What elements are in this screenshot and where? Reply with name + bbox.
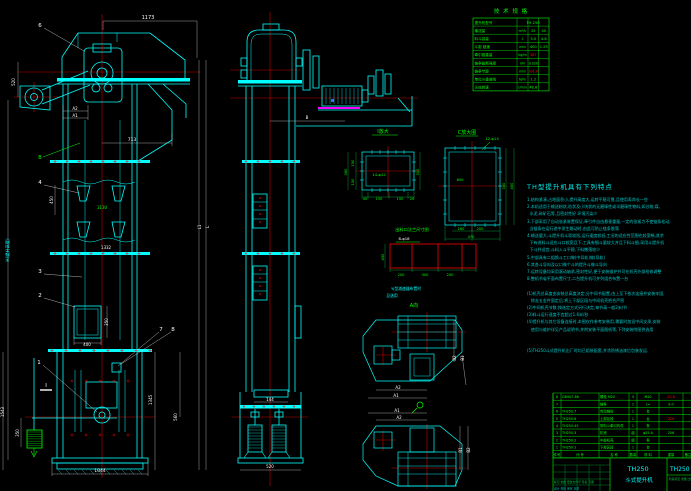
dim-label: 1173 <box>142 15 155 21</box>
dim-label: 200 <box>398 273 406 277</box>
tech-cell-value: 400 <box>530 45 538 49</box>
feature-note-line: 使用与维护详见产品说明书,并附安装平面图纸等,下列安装附图供选用 <box>527 326 691 333</box>
bom-header: 材 料 <box>644 452 652 457</box>
tech-cell-label: 单位斗重曲线 <box>475 77 497 82</box>
bom-material: 条 <box>646 437 650 442</box>
dim-label: A1 <box>394 408 400 413</box>
dim-label: 560 <box>173 413 178 421</box>
dim-label: 360 <box>344 168 348 176</box>
tech-cell-label: 链条破断强度 <box>475 60 497 65</box>
base-hatch <box>138 470 142 474</box>
shaft-dot <box>331 99 334 102</box>
feature-notes: TH型提升机具有下列特点 1.结构紧凑,占地面积小,提升高度大,运转平稳可靠,且… <box>527 181 691 354</box>
feature-note-line: 1.结构紧凑,占地面积小,提升高度大,运转平稳可靠,且使用寿命长一些 <box>527 196 691 203</box>
tech-cell-label: 牵引链重量 <box>475 52 493 57</box>
flange-bolt-mark <box>99 434 102 437</box>
bom-name: 机壳 <box>600 430 607 435</box>
base-hatch <box>74 470 78 474</box>
base-hatch <box>66 470 70 474</box>
bom-code: TH250.7 <box>561 410 576 414</box>
bom-qty: 1 <box>632 446 634 450</box>
feature-note-line: 下斗并适宜,斗料入斗平稳,下料撒落较少 <box>527 246 691 253</box>
dim-label: A1 <box>393 393 399 398</box>
reducer-plan-views <box>363 316 462 486</box>
bom-material: 台 <box>646 445 650 450</box>
dim-label: 1543 <box>0 406 5 417</box>
head-platform-band <box>57 78 190 82</box>
base-hatch <box>82 470 86 474</box>
flange-bolt-mark <box>113 434 116 437</box>
flange-bolt-mark <box>71 434 74 437</box>
flange-bolt-mark <box>127 380 130 383</box>
takeup-lever <box>32 358 117 430</box>
bom-no: 6 <box>556 410 558 414</box>
tech-cell-unit: N/m <box>519 78 526 82</box>
tech-cell-value: 1.2 <box>530 78 536 82</box>
plan2-outline <box>363 426 462 486</box>
feature-note-line: 除去五金件固定后,将上下部区段与中间机壳把合严密 <box>527 297 691 304</box>
tech-cell-unit: r/min <box>518 86 527 90</box>
dim-label: 300 <box>416 168 420 176</box>
base-hatch <box>122 470 126 474</box>
feature-note-line: 4.输送量大,斗提升机斗距较短,运行速度较低,工况的适应性范围也较宽畅,其余 <box>527 232 691 239</box>
feature-note-line: 6.其各斗导向及以口做个斗的提升斗做斗导向 <box>527 261 691 268</box>
bom-name: 螺栓 M20 <box>600 394 615 399</box>
dim-label: 450 <box>510 182 514 190</box>
tech-cell-value: TH 250 <box>525 20 540 25</box>
tech-spec-table: 技 术 规 格 提升机型号TH 250输送量m³/h2540料斗容量L3.04.… <box>473 7 549 91</box>
tech-cell-unit: L <box>522 37 524 41</box>
dim-label: 3 <box>38 269 42 275</box>
plan1-outline <box>363 320 462 381</box>
boot-casing <box>57 352 142 458</box>
bom-name: 上部区段 <box>600 416 614 421</box>
feature-note-line: 3.下部采用了自动张紧装置保证,牵引件自由悬垂重量,一定的张紧力不使链条松动, <box>527 218 691 225</box>
dim-label: 12-φ14 <box>485 136 499 141</box>
dim-label: 150 <box>351 159 355 167</box>
bom-material: M20 <box>644 395 651 399</box>
dim-label: I <box>45 383 47 389</box>
bom-qty: 4 <box>632 395 634 399</box>
feature-note-line <box>527 282 691 289</box>
bom-qty: 1 <box>632 424 634 428</box>
dim-label: 6 <box>38 23 42 29</box>
dim-label: 8-φ18 <box>398 236 410 241</box>
side-elevation-view <box>238 24 412 463</box>
dim-label: YJ型减速器布置时 <box>391 286 421 291</box>
dim-label: 450 <box>381 253 385 261</box>
reducer <box>376 70 383 96</box>
tech-cell-label: 头轮转速 <box>475 85 490 90</box>
dim-label: 470 <box>468 235 476 239</box>
bom-material: φ25-A <box>643 431 654 435</box>
flange-bolt-mark <box>259 293 261 295</box>
base-hatch <box>130 470 134 474</box>
dim-label: 150 <box>351 178 355 186</box>
bom-header: 名 称 <box>610 452 618 457</box>
dim-label: A1 <box>72 113 78 118</box>
dim-label: 150 <box>397 197 405 201</box>
dim-label: A向 <box>410 302 418 309</box>
flange-bolt-mark <box>100 46 103 49</box>
bom-weight: 20.8 <box>667 395 675 399</box>
bom-qty: 组 <box>631 437 635 442</box>
centerlines <box>14 12 508 489</box>
bom-header: 数量 <box>630 452 637 457</box>
base-hatch <box>114 470 118 474</box>
decor-marks <box>27 46 502 474</box>
tech-cell-label: 料斗容量 <box>475 36 490 41</box>
dim-label: 200 <box>447 273 455 277</box>
bom-code: TH250.2 <box>561 438 576 442</box>
bom-code: TH250.6 <box>561 417 576 421</box>
tech-cell-value: 48.8 <box>529 86 538 90</box>
flange-bolt-mark <box>259 285 261 287</box>
dim-label: 144 <box>266 397 274 402</box>
dim-label: 520 <box>11 78 16 86</box>
flange-bolt-mark <box>85 434 88 437</box>
title-block-drawing-no: TH250 <box>669 466 690 473</box>
dim-label: B1 <box>458 447 463 453</box>
bom-no: 5 <box>556 417 558 421</box>
bom-material: 台 <box>646 416 650 421</box>
flange-bolt-mark <box>259 213 261 215</box>
bom-qty: 组 <box>631 430 635 435</box>
feature-note-line: (4)提升机与其它设备连接时,本图仅作参考安装用,需要时加设中间支承,安装 <box>527 318 691 325</box>
bom-material: 台 <box>646 409 650 414</box>
dim-label: H(提升高度) <box>4 238 11 262</box>
feature-note-line: (3)料斗运行速度不宜超过1.6米/秒 <box>527 311 691 318</box>
title-block-model: TH250 <box>626 465 648 473</box>
dim-label: 1 <box>37 360 41 366</box>
bom-no: 3 <box>556 431 558 435</box>
dim-label: 300 <box>422 273 430 277</box>
flange-bolt-mark <box>127 434 130 437</box>
tech-cell-value: 40 <box>541 29 546 33</box>
tech-cell-label: 斗距 链速 <box>475 44 491 49</box>
flange-bolt-mark <box>259 277 261 279</box>
dim-label: 713 <box>128 137 137 143</box>
feature-note-line: (1)机壳总高度由安装总高度决定,分中间节配置,由上至下依次连接并安装牢固, <box>527 290 691 297</box>
dim-label: 200 <box>477 227 485 231</box>
tech-cell-value: 25 <box>531 29 536 33</box>
dim-label: 出料口法兰尺寸图 <box>395 226 429 233</box>
dim-label: B <box>306 115 309 120</box>
feature-note-line: 水泥,碎矿石等,且密封性好 环境污染少 <box>527 210 691 217</box>
dim-label: A2 <box>396 415 402 420</box>
tech-cell-value: 1.25 <box>540 45 548 49</box>
feature-note-line: 5.中部具有二组换斗工口做(中导轨)做(导轨) <box>527 254 691 261</box>
bom-no: 2 <box>556 438 558 442</box>
detail-c-view <box>445 136 500 225</box>
bom-name: 带料斗牵引构件 <box>600 423 624 428</box>
bom-name: 传动链轮 <box>600 409 614 414</box>
tech-cell-label: 提升机型号 <box>475 20 493 25</box>
bom-weight: 226 <box>668 417 674 421</box>
tech-table-title: 技 术 规 格 <box>494 7 528 15</box>
cad-drawing-canvas: 11736A2A1520B71344501130133232H(提升高度)L1L… <box>0 0 691 491</box>
inlet-chute <box>138 84 172 161</box>
dim-label: 450 <box>49 196 54 204</box>
dim-label: B2 <box>452 355 457 361</box>
dim-label: 350 <box>104 318 109 326</box>
dim-label: 1345 <box>148 394 153 405</box>
head-hood-side <box>247 30 296 80</box>
dim-label: 20 <box>410 197 415 201</box>
bom-name: 下部区段 <box>600 445 614 450</box>
dim-label: 160 <box>458 227 466 231</box>
bom-code: GB907-86 <box>562 395 579 399</box>
feature-note-line: 当链条在运行途中发生跳动时,由此可防止链条脱落 <box>527 225 691 232</box>
dim-label: A2 <box>395 385 401 390</box>
feature-notes-lines: 1.结构紧凑,占地面积小,提升高度大,运转平稳可靠,且使用寿命长一些2.本机适用… <box>527 196 691 354</box>
bom-no: 7 <box>556 402 558 406</box>
bom-name: 链条 <box>600 401 607 406</box>
flange-bolt-mark <box>259 221 261 223</box>
bom-code: TH250.3 <box>561 431 576 435</box>
feature-note-line <box>527 340 691 347</box>
bom-header: 备注 <box>685 452 691 457</box>
dim-label: 见选用 <box>386 293 398 298</box>
dim-label: 600 <box>457 178 465 182</box>
tech-cell-unit: kg/m <box>518 53 526 57</box>
dim-label: I放大 <box>377 128 388 135</box>
tech-cell-unit: mm <box>519 45 525 49</box>
dim-label: 1332 <box>101 245 112 250</box>
feature-notes-title: TH型提升机具有下列特点 <box>527 181 691 191</box>
tech-cell-unit: mm <box>519 69 525 73</box>
tech-cell-value: 101.6 <box>528 69 539 73</box>
parts-list: 8GB907-86螺栓 M204M2020.87链条1L=9.06TH250.7… <box>553 393 691 458</box>
flange-bolt-mark <box>71 380 74 383</box>
flange-bolt-mark <box>259 197 261 199</box>
dim-label: B <box>38 155 42 161</box>
feature-note-line: 7.运转设备均采用滚动轴承,密封性好,便于安装维护并可在机壳外部检修调整 <box>527 268 691 275</box>
base-hatch <box>106 470 110 474</box>
flange-bolt-mark <box>259 205 261 207</box>
feature-note-line <box>527 333 691 340</box>
bom-header: 件号 <box>554 452 561 457</box>
title-block-revision-row: 标记 处数 更改文件号 签名 日期 <box>554 480 594 484</box>
dim-label: 1130 <box>97 205 108 210</box>
bom-material: L= <box>646 402 651 406</box>
inspection-door <box>74 306 101 338</box>
bom-weight: 206 <box>668 431 674 435</box>
dim-label: 7 <box>159 327 163 333</box>
tech-cell-value: 3.0 <box>530 37 536 41</box>
bom-qty: 1 <box>632 402 634 406</box>
bom-code: TH250.45 <box>561 424 579 428</box>
bom-qty: 1 <box>632 417 634 421</box>
bom-no: 8 <box>556 395 558 399</box>
dim-label: B1 <box>460 355 465 361</box>
dim-label: 2 <box>38 293 42 299</box>
bom-weight: 9.0 <box>668 402 673 406</box>
head-bearing-housing <box>84 48 122 102</box>
tech-cell-value: 4.8 <box>541 37 547 41</box>
flange-bolt-mark <box>259 269 261 271</box>
tech-cell-unit: kN <box>520 61 525 65</box>
dim-label: 350 <box>15 429 20 437</box>
dim-label: 1044 <box>94 468 106 474</box>
discharge-flange-detail <box>390 242 476 268</box>
dim-label: 400 <box>83 342 91 347</box>
bucket-glyphs <box>77 186 125 201</box>
tech-cell-value: 387 <box>530 53 537 57</box>
dim-label: 300 <box>502 182 506 190</box>
dim-label: C放大图 <box>458 129 477 136</box>
tech-cell-unit: m³/h <box>519 29 527 33</box>
feature-note-line: (2)中间机壳节数:按选定方式另行决定,每节高一般2米/节 <box>527 304 691 311</box>
feature-note-line: 8.整机节省平面布置尺寸,二台提升机可并列组合布置一台 <box>527 275 691 282</box>
bom-material: 条 <box>646 423 650 428</box>
bom-code: TH250.1 <box>561 446 576 450</box>
tech-cell-label: 输送量 <box>475 28 486 33</box>
tech-cell-label: 链条节距 <box>475 68 490 73</box>
head-hood-outline <box>62 33 185 78</box>
feature-note-line: (5)TH250斗式提升机出厂时均已组装配套,并涂防锈油漆后包装发运. <box>527 347 691 354</box>
dim-label: 520 <box>266 464 274 469</box>
title-block-sign-row: 设计 校核 审定 日期 <box>554 487 579 491</box>
feature-note-line: 2.本机适用于输送粉状,粒状及小块状的无磨琢性或半磨琢性物料,如谷物,煤, <box>527 203 691 210</box>
casing-side-walls <box>246 86 295 392</box>
bom-header: 代 号 <box>576 452 584 457</box>
balloon-leaders <box>43 28 171 412</box>
dim-label: 4 <box>38 180 42 186</box>
dim-label: 8 <box>171 327 175 333</box>
dim-label: 40 <box>363 197 368 201</box>
dim-label: B2 <box>466 447 471 453</box>
dim-label: A2 <box>72 106 78 111</box>
bom-header: 重量 <box>668 452 675 457</box>
title-block-product: 斗式提升机 <box>625 476 653 484</box>
bom-no: 4 <box>556 424 558 428</box>
dim-label: L1 <box>197 224 202 229</box>
bom-name: 中部机壳 <box>600 437 614 442</box>
dim-label: 150 <box>376 197 384 201</box>
bom-qty: 1 <box>632 410 634 414</box>
dim-label: 14-φ12 <box>372 172 386 177</box>
feature-note-line: 下有进料斗适应斗口较宽且下,工具有细斗量较大并且下料斗细,采用斗提升机 <box>527 239 691 246</box>
bom-no: 1 <box>556 446 558 450</box>
title-block-stage-row: 阶段标记 重量 比例 <box>669 477 691 481</box>
base-hatch <box>58 470 62 474</box>
tech-cell-value: ≥320 <box>528 61 539 65</box>
